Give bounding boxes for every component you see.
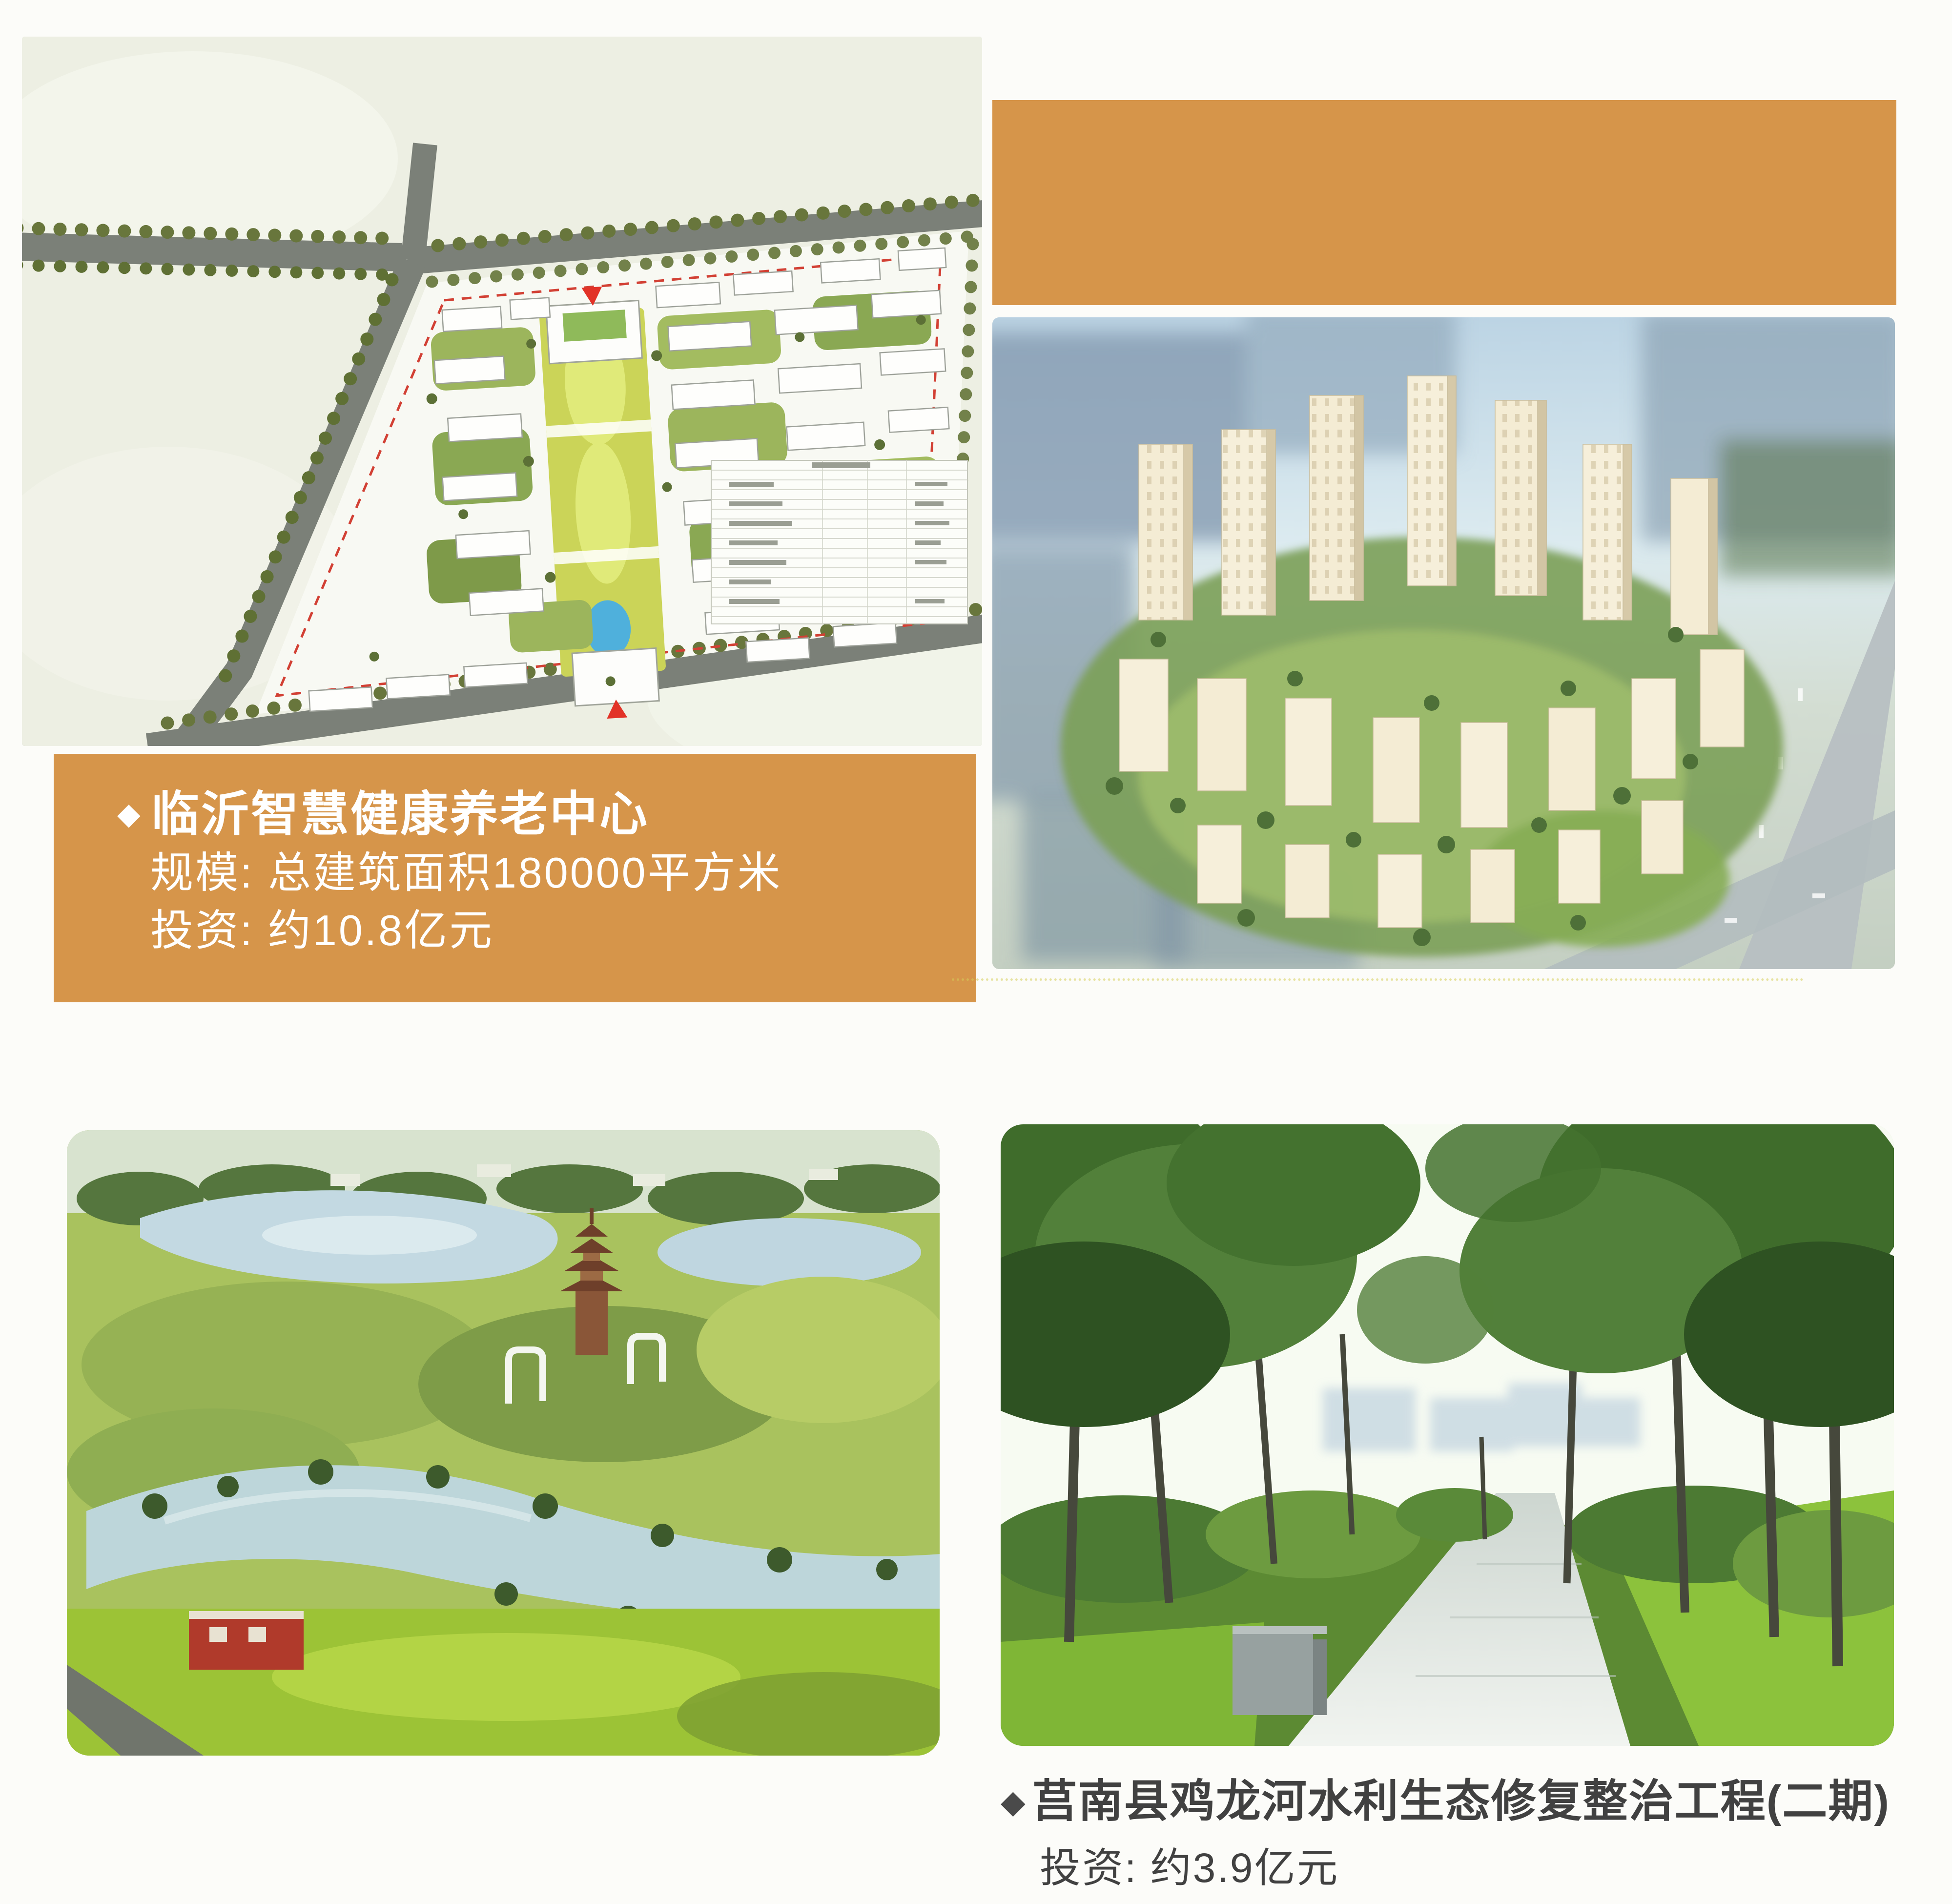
red-building (189, 1611, 304, 1670)
project-investment-line: 投资: 约3.9亿元 (1040, 1835, 1890, 1894)
project-title: 莒南县鸡龙河水利生态修复整治工程(二期) (1032, 1778, 1890, 1825)
diamond-bullet-icon: ◆ (1001, 1785, 1026, 1818)
project-investment-line: 投资: 约10.8亿元 (150, 909, 957, 952)
right-lake (658, 1218, 921, 1286)
park-photo-graphic (67, 1130, 940, 1756)
indicator-table (711, 460, 967, 624)
project-title: 临沂智慧健康养老中心 (151, 790, 649, 839)
orange-banner (992, 100, 1896, 305)
diamond-bullet-icon: ◆ (117, 799, 147, 829)
site-plan-drawing (22, 37, 982, 746)
project-caption-linyi: ◆ 临沂智慧健康养老中心 规模: 总建筑面积180000平方米 投资: 约10.… (54, 754, 976, 1002)
park-aerial-photo (67, 1130, 940, 1756)
aerial-rendering-graphic (992, 317, 1895, 969)
tree-path-photo (1001, 1124, 1894, 1746)
stone-marker (1233, 1626, 1327, 1715)
tree-path-graphic (1001, 1124, 1894, 1746)
aerial-rendering-photo (992, 317, 1895, 969)
project-caption-junan: ◆ 莒南县鸡龙河水利生态修复整治工程(二期) 投资: 约3.9亿元 (1001, 1778, 1890, 1894)
project-scale-line: 规模: 总建筑面积180000平方米 (150, 851, 957, 894)
scan-artifact-line (952, 978, 1804, 981)
site-plan-graphic (22, 37, 982, 746)
